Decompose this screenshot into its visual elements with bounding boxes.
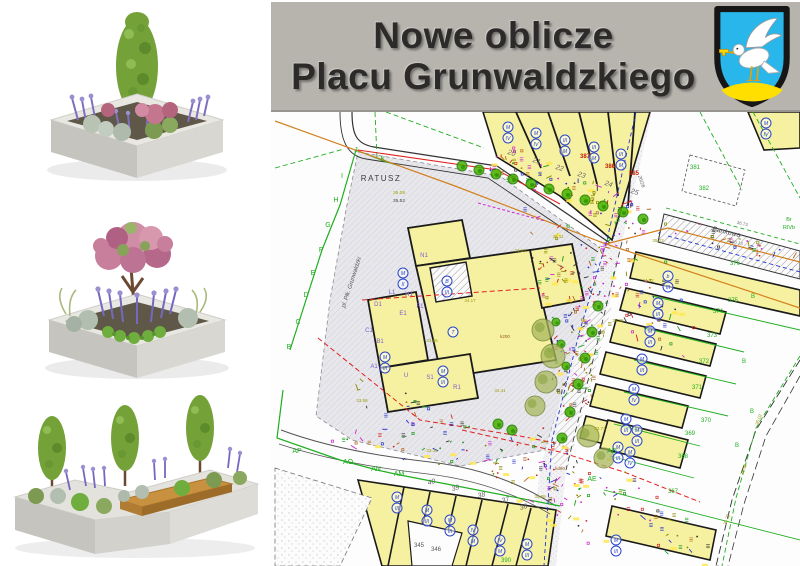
svg-text:IV: IV [506, 136, 511, 142]
svg-text:346: 346 [431, 547, 442, 553]
svg-text:G: G [325, 222, 330, 229]
svg-text:34.55: 34.55 [514, 248, 526, 253]
svg-text:M: M [614, 538, 619, 544]
svg-text:35.08: 35.08 [393, 190, 405, 196]
svg-text:35.23: 35.23 [652, 238, 664, 243]
svg-text:367: 367 [668, 489, 679, 495]
svg-text:M: M [632, 387, 637, 393]
svg-text:III: III [619, 152, 624, 158]
svg-text:III: III [648, 340, 653, 346]
svg-text:III: III [441, 380, 446, 386]
svg-text:M: M [628, 450, 633, 456]
svg-text:AE: AE [587, 476, 597, 483]
svg-text:M: M [635, 428, 640, 434]
svg-text:M: M [656, 301, 661, 307]
svg-text:k200: k200 [500, 334, 510, 339]
title-line-1: Nowe oblicze [277, 15, 710, 56]
svg-text:M: M [592, 156, 597, 162]
svg-text:B: B [751, 294, 755, 300]
planter-render-columnar-tree [0, 2, 270, 194]
planter-render-l-shaped-bench [0, 392, 270, 566]
svg-text:M: M [425, 508, 430, 514]
svg-text:A1: A1 [370, 364, 378, 370]
svg-text:33.34: 33.34 [426, 448, 438, 453]
svg-text:390: 390 [501, 558, 512, 564]
svg-text:RATUSZ: RATUSZ [361, 174, 401, 183]
svg-text:III: III [624, 428, 629, 434]
svg-text:III: III [616, 456, 621, 462]
svg-text:L1: L1 [389, 290, 396, 296]
svg-text:372: 372 [699, 359, 710, 365]
title-line-2: Placu Grunwaldzkiego [277, 56, 710, 97]
svg-text:F1: F1 [416, 304, 424, 310]
svg-text:35.86: 35.86 [612, 318, 624, 323]
svg-text:35.52: 35.52 [393, 198, 405, 204]
title-banner: Nowe oblicze Placu Grunwaldzkiego [271, 2, 800, 112]
svg-text:M: M [471, 539, 476, 545]
svg-text:M: M [506, 125, 511, 131]
svg-text:III: III [525, 553, 530, 559]
svg-text:AP: AP [292, 448, 302, 455]
svg-text:AO: AO [343, 459, 354, 466]
svg-text:M: M [383, 355, 388, 361]
svg-text:AM: AM [394, 471, 405, 478]
svg-text:375: 375 [728, 298, 739, 304]
svg-text:371: 371 [692, 385, 703, 391]
svg-text:33.96: 33.96 [426, 338, 438, 343]
svg-text:K: K [381, 156, 386, 163]
svg-text:III: III [445, 290, 450, 296]
svg-text:370: 370 [701, 418, 712, 424]
svg-text:373: 373 [707, 333, 718, 339]
svg-text:III: III [383, 366, 388, 372]
svg-text:Br: Br [786, 217, 792, 223]
svg-text:R1: R1 [453, 385, 461, 391]
svg-text:33.58: 33.58 [356, 398, 368, 403]
page-title: Nowe oblicze Placu Grunwaldzkiego [271, 15, 710, 98]
svg-text:M: M [498, 549, 503, 555]
svg-text:AD: AD [607, 448, 617, 455]
svg-text:III: III [563, 138, 568, 144]
svg-text:U: U [404, 373, 408, 379]
svg-text:376: 376 [730, 261, 741, 267]
svg-text:382: 382 [699, 186, 710, 192]
svg-text:AN: AN [371, 466, 381, 473]
svg-text:M: M [534, 131, 539, 137]
svg-text:RIVb: RIVb [783, 225, 795, 231]
svg-text:34.41: 34.41 [494, 388, 506, 393]
svg-text:C: C [295, 319, 300, 326]
svg-text:B: B [735, 443, 739, 449]
svg-text:F: F [319, 247, 323, 254]
svg-text:M: M [648, 329, 653, 335]
svg-text:345: 345 [414, 543, 425, 549]
poster: Nowe oblicze Placu Grunwaldzkiego [0, 0, 800, 566]
svg-text:M: M [525, 542, 530, 548]
svg-text:I: I [341, 173, 343, 180]
svg-text:J: J [354, 147, 358, 154]
planter-renders-column [0, 0, 270, 566]
city-coat-of-arms-icon [710, 5, 794, 107]
svg-text:III: III [640, 368, 645, 374]
svg-text:III: III [448, 529, 453, 535]
svg-text:III: III [592, 145, 597, 151]
svg-text:368: 368 [678, 454, 689, 460]
svg-text:H: H [333, 197, 338, 204]
svg-text:III: III [395, 506, 400, 512]
svg-text:381: 381 [690, 165, 701, 171]
svg-text:III: III [614, 549, 619, 555]
svg-text:III: III [635, 439, 640, 445]
svg-text:M: M [563, 149, 568, 155]
svg-text:IV: IV [632, 398, 637, 404]
svg-text:D: D [303, 292, 308, 299]
svg-text:H1: H1 [405, 292, 413, 298]
svg-text:E1: E1 [399, 311, 407, 317]
svg-text:S1: S1 [426, 375, 434, 381]
svg-text:B: B [742, 359, 746, 365]
cadastral-plan-svg: MIVMIVIIIMIIIMIIIMMIVMIIBIIIMIIIMIIITbII… [271, 112, 800, 566]
svg-text:35.11: 35.11 [553, 234, 564, 239]
svg-text:M: M [395, 495, 400, 501]
svg-text:IV: IV [534, 142, 539, 148]
svg-text:IV: IV [471, 528, 476, 534]
svg-text:D1: D1 [374, 302, 382, 308]
svg-text:B: B [445, 279, 449, 285]
svg-text:M: M [640, 357, 645, 363]
svg-text:IV: IV [764, 132, 769, 138]
svg-text:IV: IV [628, 461, 633, 467]
svg-text:34.88: 34.88 [534, 494, 546, 499]
svg-text:387: 387 [580, 154, 591, 160]
svg-text:III: III [425, 519, 430, 525]
svg-text:B: B [750, 409, 754, 415]
svg-text:M: M [624, 417, 629, 423]
svg-text:N1: N1 [420, 253, 428, 259]
planter-render-flowering-tree [0, 196, 270, 392]
svg-text:kd90: kd90 [555, 466, 565, 471]
svg-text:E: E [311, 270, 316, 277]
svg-text:M: M [764, 121, 769, 127]
svg-text:33.74: 33.74 [594, 426, 606, 431]
svg-text:B: B [287, 344, 292, 351]
svg-text:M: M [448, 518, 453, 524]
svg-text:M: M [401, 271, 406, 277]
svg-text:34.17: 34.17 [464, 298, 476, 303]
svg-text:374: 374 [713, 309, 724, 315]
svg-text:IV: IV [498, 538, 503, 544]
svg-text:M: M [619, 163, 624, 169]
svg-text:B1: B1 [376, 339, 384, 345]
svg-text:b: b [667, 274, 670, 280]
svg-text:C1: C1 [365, 328, 373, 334]
svg-text:III: III [666, 285, 671, 291]
svg-text:369: 369 [685, 431, 696, 437]
svg-text:34.02: 34.02 [642, 278, 654, 283]
svg-text:385: 385 [629, 171, 640, 177]
svg-text:386: 386 [605, 164, 616, 170]
cadastral-plan: MIVMIVIIIMIIIMIIIMMIVMIIBIIIMIIIMIIITbII… [271, 112, 800, 566]
svg-text:III: III [656, 312, 661, 318]
svg-text:M: M [441, 369, 446, 375]
